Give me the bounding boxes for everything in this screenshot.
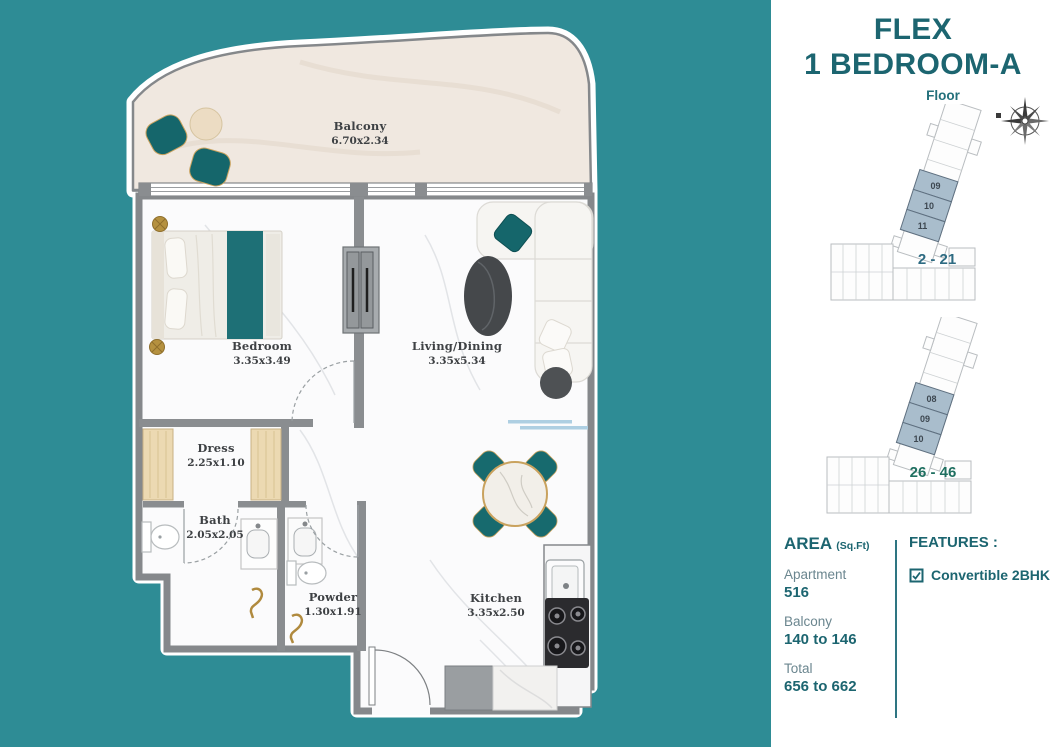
coffee-table-icon: [464, 256, 512, 336]
svg-text:3.35x2.50: 3.35x2.50: [467, 607, 524, 619]
toilet-icon: [287, 561, 326, 585]
window-wall: [139, 183, 592, 196]
unit-number: 10: [913, 434, 923, 444]
svg-text:3.35x5.34: 3.35x5.34: [428, 355, 485, 367]
svg-text:1.30x1.91: 1.30x1.91: [304, 606, 361, 618]
side-table-icon: [540, 367, 572, 399]
unit-number: 11: [918, 221, 928, 231]
svg-text:Living/Dining: Living/Dining: [412, 339, 502, 353]
page: Balcony 6.70x2.34 Bedroom 3.35x3.49 Livi…: [0, 0, 1055, 747]
area-row-value: 516: [784, 584, 890, 601]
title-line-1: FLEX: [771, 12, 1055, 47]
svg-text:Powder: Powder: [309, 590, 358, 604]
balcony-table-icon: [190, 108, 222, 140]
floor-range-label: 26 - 46: [910, 464, 957, 481]
feature-item: Convertible 2BHK: [909, 567, 1051, 583]
checkbox-checked-icon: [909, 568, 924, 583]
nightstand-icon: [150, 340, 165, 355]
area-row-label: Apartment: [784, 567, 890, 582]
svg-text:3.35x3.49: 3.35x3.49: [233, 355, 290, 367]
area-section: AREA (Sq.Ft) Apartment 516 Balcony 140 t…: [784, 534, 890, 695]
area-heading-text: AREA: [784, 534, 832, 553]
unit-number: 10: [924, 201, 934, 211]
unit-number: 09: [920, 414, 930, 424]
cabinet-icon: [493, 666, 557, 710]
svg-text:Kitchen: Kitchen: [470, 591, 523, 605]
page-title: FLEX 1 BEDROOM-A: [771, 12, 1055, 83]
svg-text:Dress: Dress: [197, 441, 234, 455]
sink-icon: [241, 519, 277, 569]
features-section: FEATURES : Convertible 2BHK: [909, 534, 1051, 583]
closet-icon: [251, 429, 281, 500]
area-row-apartment: Apartment 516: [784, 567, 890, 601]
stove-icon: [545, 598, 589, 668]
compass-icon: [993, 92, 1051, 150]
svg-text:6.70x2.34: 6.70x2.34: [331, 135, 388, 147]
area-row-balcony: Balcony 140 to 146: [784, 614, 890, 648]
bed-icon: [152, 231, 282, 339]
area-row-total: Total 656 to 662: [784, 661, 890, 695]
cabinet-icon: [445, 666, 493, 710]
area-row-label: Total: [784, 661, 890, 676]
sink-icon: [288, 518, 322, 564]
sliding-door-icon: [343, 247, 379, 333]
svg-text:Bath: Bath: [199, 513, 231, 527]
unit-number: 08: [926, 394, 936, 404]
feature-label: Convertible 2BHK: [931, 567, 1050, 583]
floorplan-drawing: Balcony 6.70x2.34 Bedroom 3.35x3.49 Livi…: [0, 0, 780, 747]
svg-text:Balcony: Balcony: [334, 119, 387, 133]
floor-diagram-high-zone: 08 09 10 26 - 46: [819, 317, 984, 522]
dining-table-icon: [469, 447, 561, 541]
svg-text:2.05x2.05: 2.05x2.05: [186, 529, 243, 541]
floor-range-label: 2 - 21: [918, 251, 956, 268]
area-row-label: Balcony: [784, 614, 890, 629]
floor-diagram-low-zone: 09 10 11 2 - 21: [823, 104, 988, 309]
unit-number: 09: [930, 181, 940, 191]
section-divider: [895, 540, 897, 718]
features-heading: FEATURES :: [909, 534, 1051, 551]
area-heading: AREA (Sq.Ft): [784, 534, 890, 554]
svg-text:Bedroom: Bedroom: [232, 339, 292, 353]
nightstand-icon: [153, 217, 168, 232]
title-line-2: 1 BEDROOM-A: [771, 47, 1055, 82]
svg-text:2.25x1.10: 2.25x1.10: [187, 457, 244, 469]
closet-icon: [143, 429, 173, 500]
area-row-value: 656 to 662: [784, 678, 890, 695]
area-row-value: 140 to 146: [784, 631, 890, 648]
info-panel: FLEX 1 BEDROOM-A Floor 09 10 11: [771, 0, 1055, 747]
area-unit-label: (Sq.Ft): [836, 540, 869, 552]
